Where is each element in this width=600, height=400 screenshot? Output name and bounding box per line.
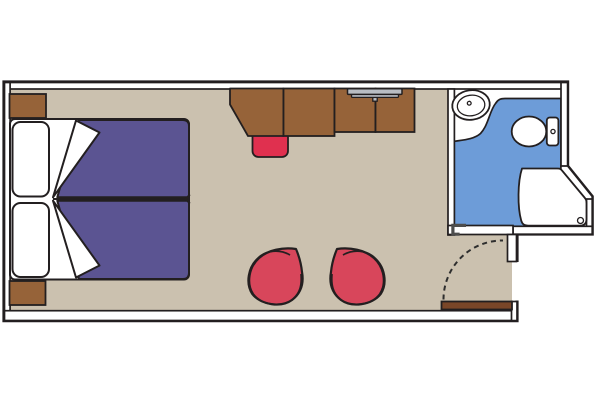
nightstand-bottom [10,281,46,305]
pillow-top [13,122,50,197]
wall-right-upper [561,83,568,167]
wall-bottom [5,311,518,321]
entrance-door-opening [513,262,521,301]
floor-plan-canvas [0,0,600,400]
pillow-bottom [13,203,50,277]
wall-door-stub [508,235,517,262]
shower-drain-icon [578,218,584,224]
toilet-bowl [512,117,547,147]
entrance-door-leaf [442,302,513,310]
desk-section-2 [284,89,335,137]
tv-screen [348,89,403,95]
toilet [512,117,559,147]
cabin-floor-plan [0,0,600,400]
wall-bump-bottom [513,226,592,234]
nightstand-top [10,94,47,118]
double-bed [10,119,190,280]
toilet-flush-icon [551,129,555,133]
